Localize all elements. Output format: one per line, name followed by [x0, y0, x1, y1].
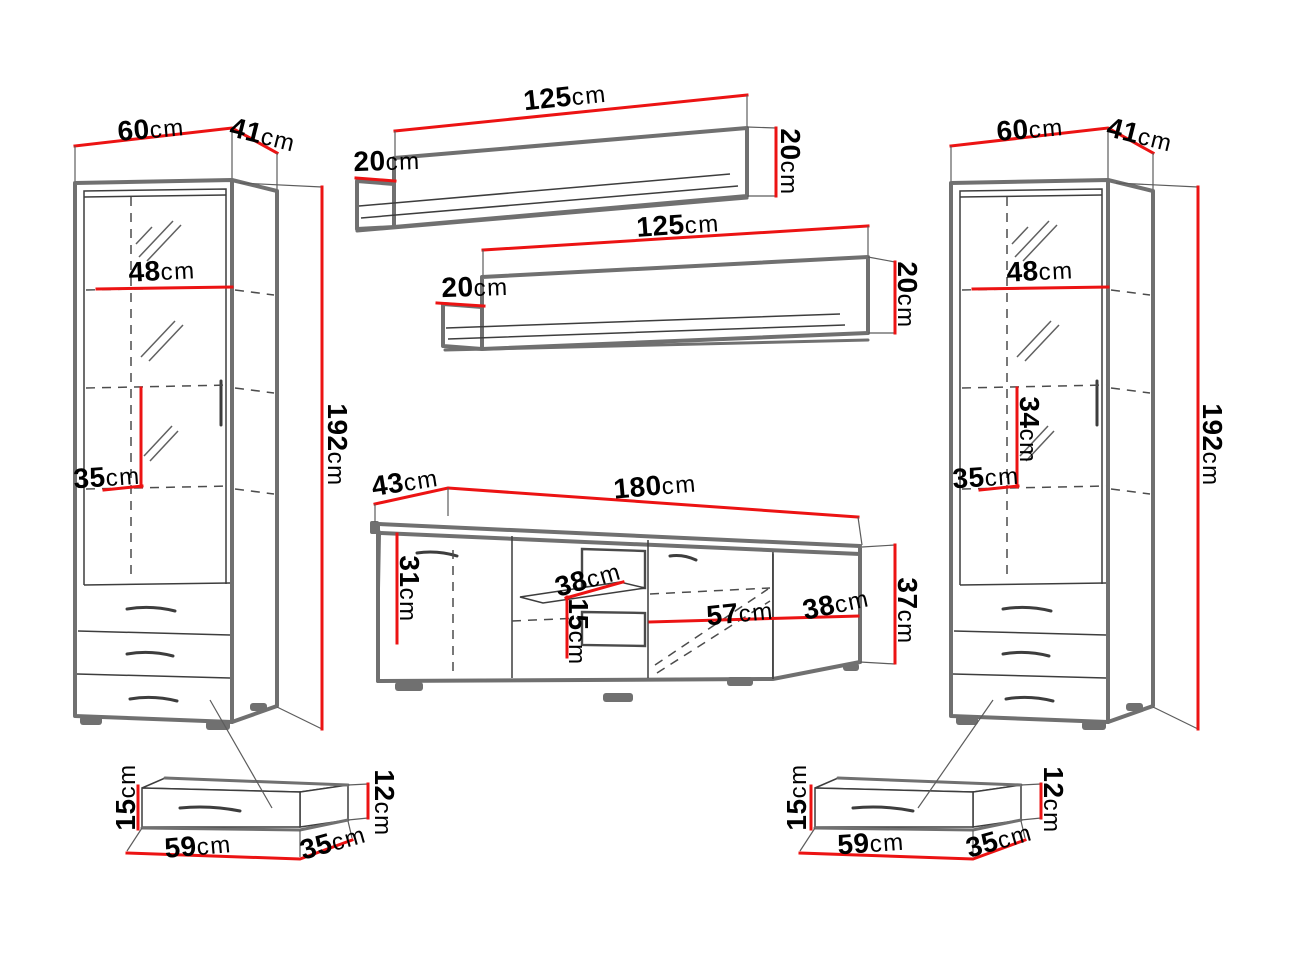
- dim-shelf1-depth: 20cm: [353, 146, 421, 176]
- dim-shelf2-height: 20cm: [893, 261, 921, 328]
- dim-shelf1-height: 20cm: [776, 128, 804, 195]
- dim-tv-compartment-width: 57cm: [705, 596, 775, 631]
- dim-tv-inner-height: 31cm: [395, 555, 423, 622]
- dim-tv-width: 180cm: [612, 468, 697, 503]
- dim-right-cabinet-shelf-width: 48cm: [1006, 255, 1075, 286]
- dim-left-cabinet-height: 192cm: [323, 403, 351, 486]
- furniture-dimension-diagram: 60cm 41cm 48cm 35cm 192cm 125cm 20cm 20c…: [0, 0, 1296, 972]
- dim-right-cabinet-height: 192cm: [1198, 403, 1226, 486]
- dim-tv-height: 37cm: [893, 577, 921, 644]
- tall-cabinet-drawing-right: [951, 128, 1198, 730]
- dim-drawer1-side-height: 12cm: [370, 769, 398, 836]
- dim-left-cabinet-width: 60cm: [116, 112, 185, 146]
- dim-right-cabinet-width: 60cm: [995, 112, 1064, 146]
- dim-shelf2-width: 125cm: [636, 208, 721, 242]
- dim-left-cabinet-shelf-width: 48cm: [128, 255, 197, 286]
- tall-cabinet-drawing: [75, 128, 322, 730]
- dim-drawer1-front-height: 15cm: [112, 763, 140, 830]
- dim-drawer2-width: 59cm: [837, 827, 906, 860]
- dim-right-cabinet-section-height: 34cm: [1015, 396, 1043, 463]
- dim-tv-shelf-gap: 15cm: [564, 598, 592, 665]
- dim-drawer2-side-height: 12cm: [1039, 766, 1067, 833]
- dim-left-cabinet-shelf-depth: 35cm: [73, 461, 142, 494]
- dim-drawer1-width: 59cm: [163, 829, 232, 863]
- dim-drawer2-front-height: 15cm: [783, 763, 811, 830]
- dim-shelf2-depth: 20cm: [441, 272, 509, 302]
- dim-right-cabinet-shelf-depth: 35cm: [952, 461, 1021, 494]
